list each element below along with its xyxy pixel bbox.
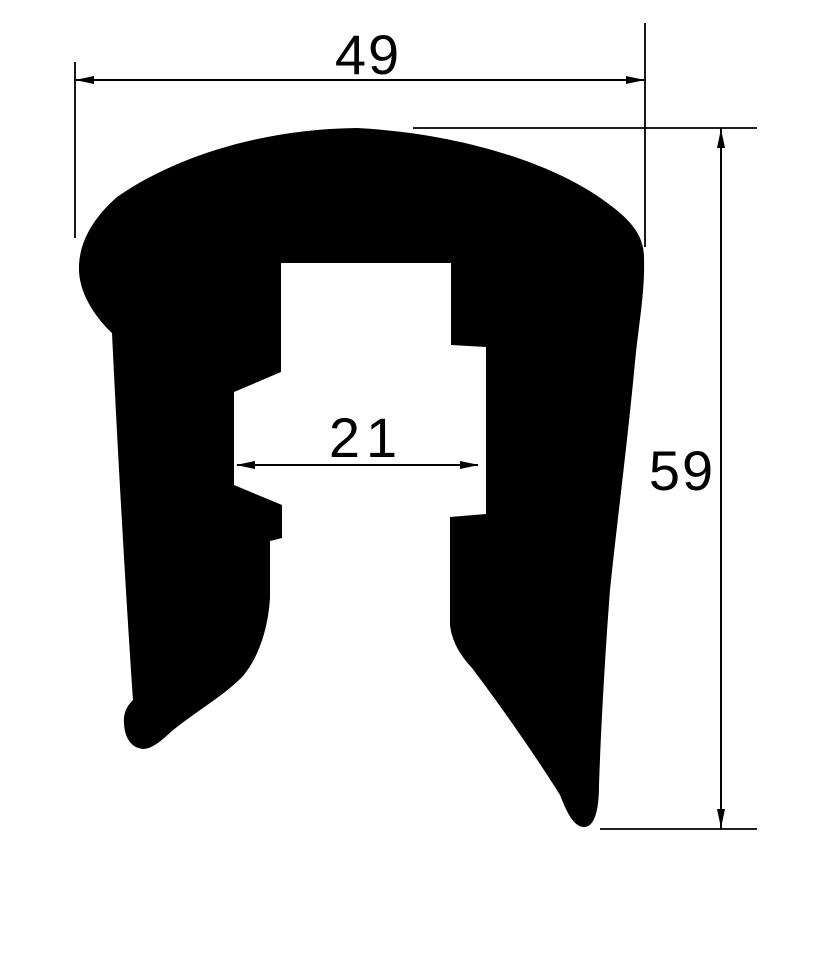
height-dimension-label: 59	[649, 439, 715, 502]
arrow-right-icon	[626, 76, 645, 84]
inner-width-dimension-label: 21	[329, 406, 403, 469]
width-dimension-label: 49	[335, 23, 401, 86]
arrow-left-icon	[236, 461, 255, 469]
seal-profile-shape	[79, 128, 644, 827]
drawing-canvas: 49 21 59	[0, 0, 840, 960]
arrow-down-icon	[717, 809, 725, 828]
technical-drawing-page: 49 21 59	[0, 0, 840, 960]
dimension-inner-width: 21	[236, 406, 479, 469]
arrow-up-icon	[717, 129, 725, 148]
arrow-right-icon	[460, 461, 479, 469]
arrow-left-icon	[75, 76, 94, 84]
